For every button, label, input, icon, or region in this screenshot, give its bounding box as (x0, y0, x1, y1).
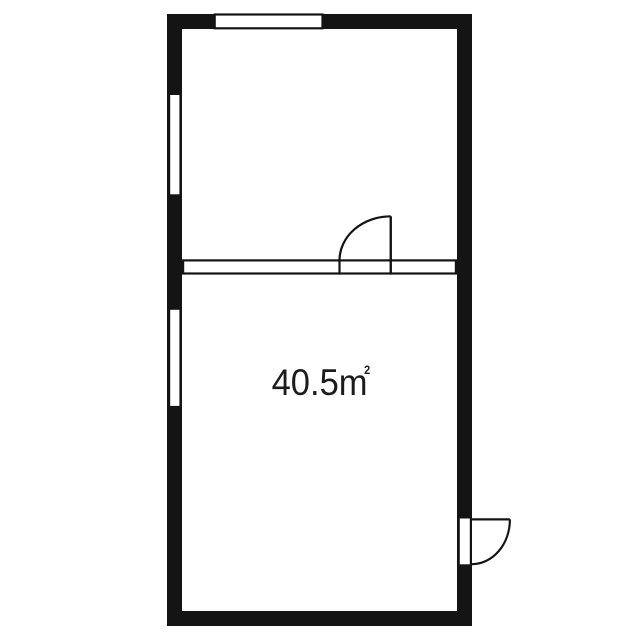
svg-text:2: 2 (364, 364, 370, 376)
svg-text:40.5m: 40.5m (272, 361, 368, 404)
